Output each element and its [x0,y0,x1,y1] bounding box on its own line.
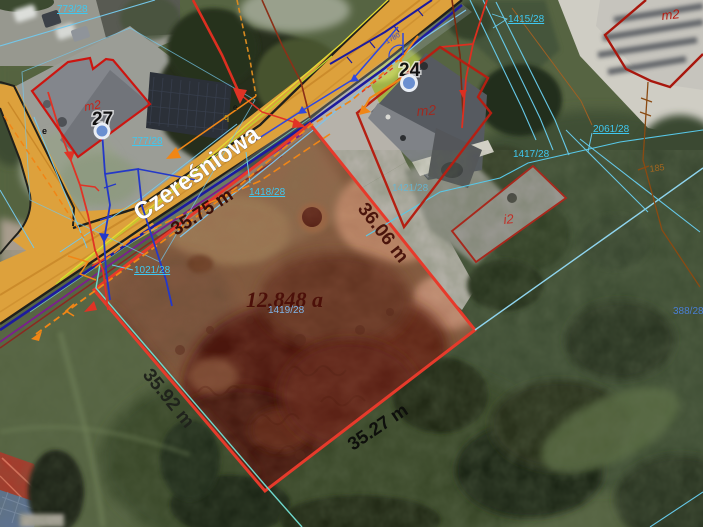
svg-text:185: 185 [649,162,665,174]
svg-text:2061/28: 2061/28 [593,124,630,135]
svg-text:m2: m2 [83,97,102,114]
svg-text:1418/28: 1418/28 [249,187,286,198]
svg-text:777/28: 777/28 [132,136,163,147]
svg-text:1417/28: 1417/28 [513,149,550,160]
svg-text:e: e [42,126,47,136]
svg-text:1415/28: 1415/28 [508,14,545,25]
svg-text:1419/28: 1419/28 [268,305,305,316]
svg-text:m2: m2 [416,102,437,119]
svg-text:773/28: 773/28 [57,4,88,15]
svg-text:q: q [224,112,229,122]
svg-text:e: e [233,103,238,112]
svg-text:1021/28: 1021/28 [134,265,171,276]
svg-text:1421/28: 1421/28 [392,183,429,194]
svg-text:388/28: 388/28 [673,306,703,317]
svg-text:m2: m2 [661,6,681,23]
